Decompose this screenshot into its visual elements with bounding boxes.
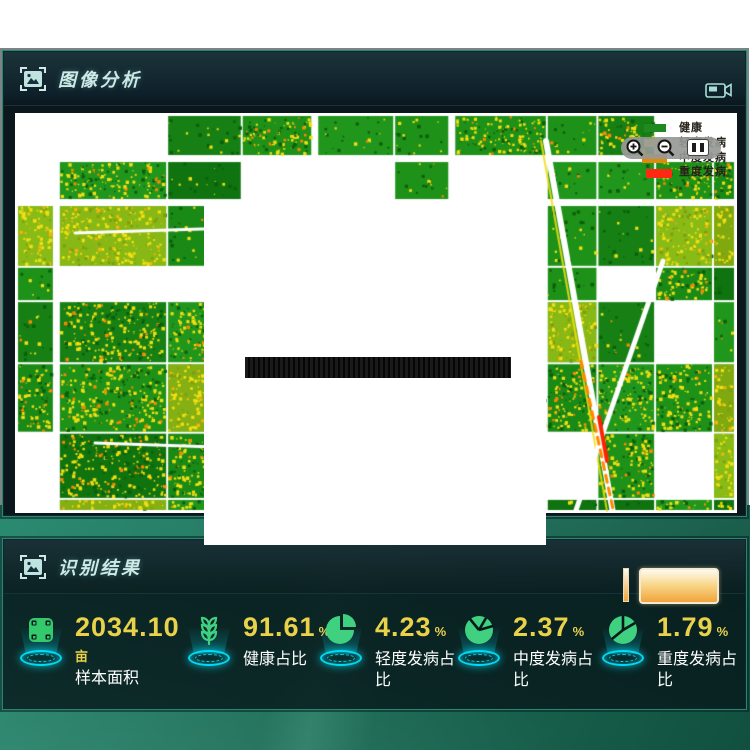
image-frame-icon: [20, 555, 46, 579]
pie-chart-icon: [606, 613, 640, 647]
legend-swatch-severe: [646, 169, 672, 178]
dashboard: 图像分析 健康 轻度发病: [0, 0, 750, 750]
stat-healthy-ratio: 91.61% 健康占比: [187, 613, 335, 670]
stat-moderate-disease-ratio: 2.37% 中度发病占比: [457, 613, 605, 691]
video-camera-icon[interactable]: [705, 80, 733, 100]
pie-chart-icon: [462, 613, 496, 647]
stat-unit: 亩: [75, 646, 180, 665]
stat-label: 轻度发病占比: [375, 649, 467, 691]
field-area-icon: [24, 613, 58, 647]
glow-pedestal: [20, 650, 62, 666]
stat-mild-disease-ratio: 4.23% 轻度发病占比: [319, 613, 467, 691]
panel-title: 识别结果: [58, 554, 142, 580]
stat-sample-area: 2034.10 亩 样本面积: [19, 613, 180, 689]
overlay-placeholder: [204, 203, 546, 545]
orange-indicator-button[interactable]: [639, 568, 719, 604]
glow-pedestal: [188, 650, 230, 666]
legend-swatch-healthy: [644, 124, 666, 132]
stat-label: 中度发病占比: [513, 649, 605, 691]
stat-label: 重度发病占比: [657, 649, 749, 691]
pie-chart-icon: [324, 613, 358, 647]
image-analysis-header: 图像分析: [4, 52, 745, 106]
wheat-icon: [192, 613, 226, 647]
image-frame-icon: [20, 67, 46, 91]
zoom-out-icon[interactable]: [657, 139, 675, 157]
glow-pedestal: [320, 650, 362, 666]
slider-handle-icon[interactable]: [687, 139, 709, 156]
redacted-text-bar: [245, 357, 511, 378]
stat-severe-disease-ratio: 1.79% 重度发病占比: [601, 613, 749, 691]
orange-indicator-bar[interactable]: [623, 568, 629, 602]
stat-label: 样本面积: [75, 668, 167, 689]
zoom-in-icon[interactable]: [626, 139, 644, 157]
map-zoom-toolbar: [621, 137, 721, 159]
stat-value: 2034.10: [75, 613, 180, 641]
panel-title: 图像分析: [58, 66, 142, 92]
glow-pedestal: [458, 650, 500, 666]
stat-value: 4.23%: [375, 613, 467, 646]
recognition-results-panel: 识别结果 2034.10 亩 样本面积: [2, 538, 747, 710]
stat-value: 2.37%: [513, 613, 605, 646]
recognition-results-header: 识别结果: [4, 540, 745, 594]
stat-value: 1.79%: [657, 613, 749, 646]
glow-pedestal: [602, 650, 644, 666]
